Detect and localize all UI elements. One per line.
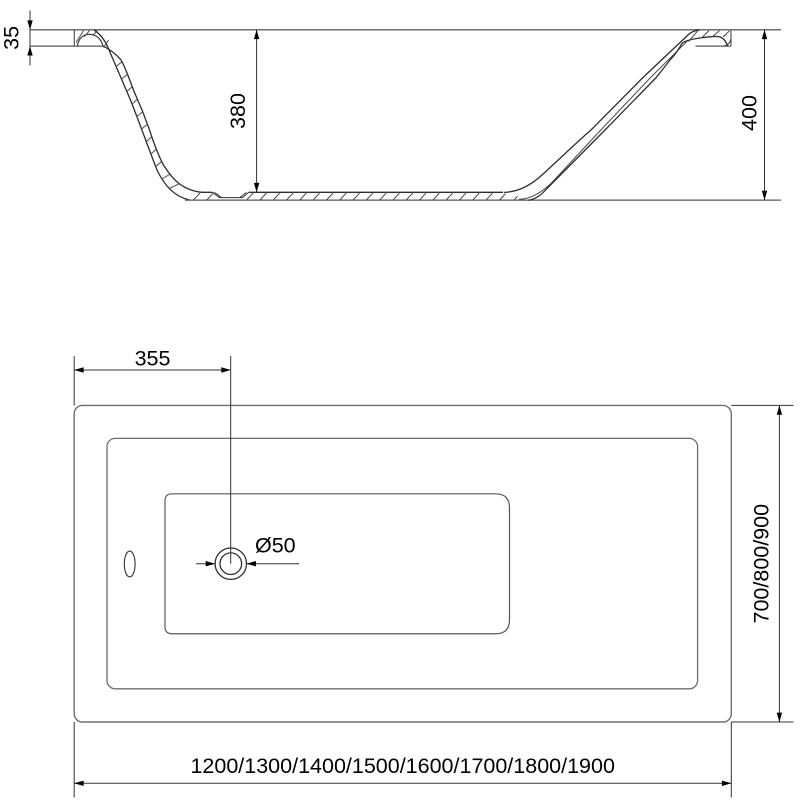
svg-text:Ø50: Ø50 xyxy=(255,534,296,558)
svg-text:1200/1300/1400/1500/1600/1700/: 1200/1300/1400/1500/1600/1700/1800/1900 xyxy=(190,754,614,778)
svg-text:400: 400 xyxy=(738,95,762,131)
svg-text:355: 355 xyxy=(135,346,171,370)
svg-text:700/800/900: 700/800/900 xyxy=(749,504,773,624)
svg-text:380: 380 xyxy=(226,93,250,129)
svg-text:35: 35 xyxy=(0,26,24,50)
